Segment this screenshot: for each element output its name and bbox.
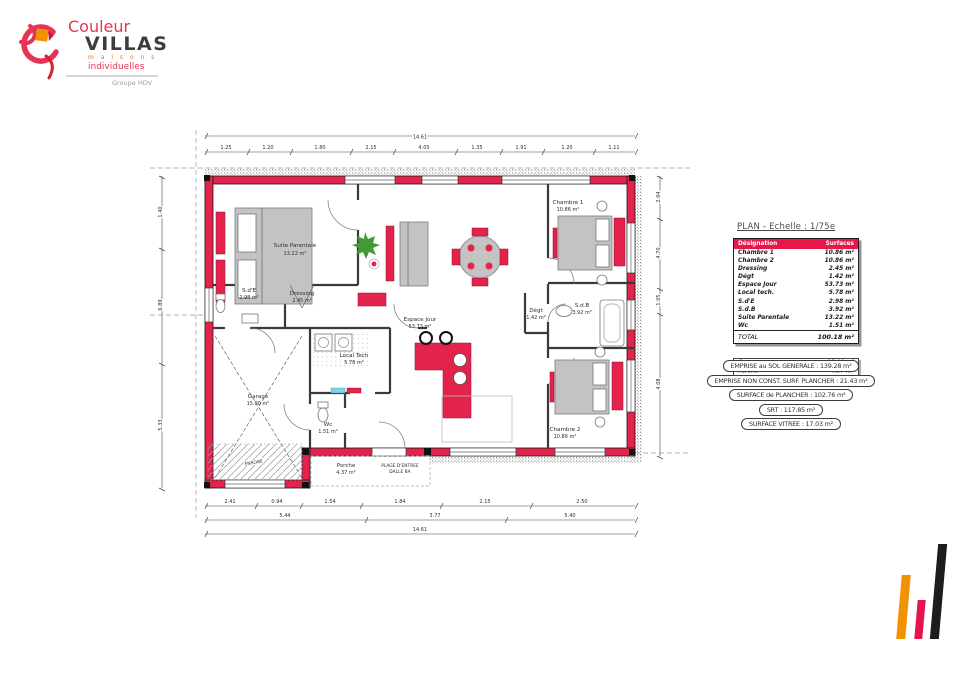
svg-text:15.00 m²: 15.00 m² — [247, 401, 270, 407]
room-area: 3.92 m² — [829, 306, 854, 314]
svg-text:2.41: 2.41 — [224, 499, 235, 505]
room-name: S.d.B — [738, 306, 755, 314]
svg-text:5.44: 5.44 — [279, 513, 290, 519]
tv-unit — [386, 226, 394, 281]
pillow — [596, 219, 609, 241]
logo-swirl-icon — [21, 26, 56, 78]
badge-srt: SRT : 117.85 m² — [759, 404, 823, 416]
svg-text:1.25: 1.25 — [220, 145, 231, 151]
svg-text:1.42 m²: 1.42 m² — [526, 315, 546, 321]
svg-text:1.20: 1.20 — [262, 145, 273, 151]
svg-text:5.78 m²: 5.78 m² — [344, 360, 364, 366]
badge-surface-vitree: SURFACE VITREE : 17.03 m² — [741, 418, 841, 430]
porch-slab — [311, 388, 430, 486]
dining-table — [459, 236, 501, 278]
svg-text:53.73 m²: 53.73 m² — [409, 324, 432, 330]
chair — [500, 249, 508, 265]
svg-text:4.70: 4.70 — [656, 247, 662, 258]
room-area: 10.86 m² — [825, 257, 854, 265]
wc-fixture — [318, 402, 328, 422]
corner-bar-orange — [896, 575, 911, 639]
wardrobe — [612, 362, 623, 410]
garage-markings: ENROBE — [208, 336, 302, 480]
living-furniture — [352, 222, 508, 306]
nightstand — [597, 275, 607, 285]
surface-badges: EMPRISE au SOL GENERALE : 139.28 m² EMPR… — [698, 360, 884, 430]
room-area: 53.73 m² — [825, 281, 854, 289]
svg-text:14.61: 14.61 — [413, 527, 427, 533]
svg-text:1.51 m²: 1.51 m² — [318, 429, 338, 435]
room-area: 10.86 m² — [825, 249, 854, 257]
badge-emprise-sol: EMPRISE au SOL GENERALE : 139.28 m² — [723, 360, 860, 372]
svg-text:Espace Jour: Espace Jour — [404, 317, 437, 323]
wardrobe — [614, 218, 625, 266]
table-row: Wc1.51 m² — [734, 322, 858, 330]
svg-text:1.54: 1.54 — [324, 499, 335, 505]
total-label: TOTAL — [738, 333, 758, 341]
washbasin — [556, 306, 572, 317]
washer — [315, 334, 332, 351]
svg-text:5.40: 5.40 — [564, 513, 575, 519]
table-row: S.d'E2.98 m² — [734, 298, 858, 306]
wardrobe — [216, 212, 225, 254]
svg-text:13.22 m²: 13.22 m² — [284, 251, 307, 257]
svg-text:Chambre 1: Chambre 1 — [553, 200, 584, 206]
badge-surface-plancher: SURFACE de PLANCHER : 102.76 m² — [729, 389, 854, 401]
sdb-fixtures — [556, 300, 624, 346]
table-row: Espace Jour53.73 m² — [734, 281, 858, 289]
room-name: Suite Parentale — [738, 314, 789, 322]
chair — [452, 249, 460, 265]
kitchen-furniture — [415, 332, 512, 442]
nightstand — [595, 347, 605, 357]
room-name: S.d'E — [738, 298, 755, 306]
sink — [454, 354, 467, 367]
company-logo: Couleur VILLAS m a i s o n s individuell… — [8, 6, 178, 96]
room-name: Chambre 2 — [738, 257, 774, 265]
brand-villas: VILLAS — [85, 33, 168, 55]
bathtub — [600, 300, 624, 346]
table-row: Chambre 110.86 m² — [734, 249, 858, 257]
page: Couleur VILLAS m a i s o n s individuell… — [0, 0, 960, 678]
svg-text:PLAGE D'ENTREE: PLAGE D'ENTREE — [381, 463, 419, 469]
dryer — [335, 334, 352, 351]
svg-text:1.80: 1.80 — [314, 145, 325, 151]
corner-bar-pink — [914, 600, 925, 639]
svg-text:4.05: 4.05 — [418, 145, 429, 151]
surface-panel: PLAN - Echelle : 1/75e Désignation Surfa… — [733, 222, 883, 379]
svg-text:1.11: 1.11 — [608, 145, 619, 151]
svg-text:3.77: 3.77 — [429, 513, 440, 519]
svg-text:Dégt: Dégt — [529, 307, 543, 314]
sofa — [400, 222, 428, 286]
svg-text:2.98 m²: 2.98 m² — [239, 295, 259, 301]
header-surfaces: Surfaces — [826, 241, 854, 247]
runner-rug — [553, 228, 557, 258]
svg-text:S.d.B: S.d.B — [575, 303, 590, 309]
svg-text:1.20: 1.20 — [561, 145, 572, 151]
table-total-row: TOTAL 100.18 m² — [734, 330, 858, 343]
table-row: Chambre 210.86 m² — [734, 257, 858, 265]
pillow — [596, 245, 609, 267]
svg-text:6.89: 6.89 — [158, 299, 164, 310]
room-name: Espace Jour — [738, 281, 777, 289]
total-value: 100.18 m² — [818, 333, 854, 341]
svg-text:5.33: 5.33 — [158, 419, 164, 430]
orange-square — [35, 28, 48, 41]
table-row: Dégt1.42 m² — [734, 273, 858, 281]
svg-text:3.92 m²: 3.92 m² — [572, 310, 592, 316]
room-area: 13.22 m² — [825, 314, 854, 322]
svg-text:2.15: 2.15 — [365, 145, 376, 151]
svg-text:1.91: 1.91 — [515, 145, 526, 151]
room-area: 1.51 m² — [829, 322, 854, 330]
room-name: Dégt — [738, 273, 754, 281]
svg-text:Garage: Garage — [248, 394, 269, 400]
chair — [472, 278, 488, 286]
room-name: Chambre 1 — [738, 249, 774, 257]
svg-text:14.61: 14.61 — [413, 135, 427, 141]
svg-text:4.37 m²: 4.37 m² — [336, 470, 356, 476]
svg-text:DALLE BA: DALLE BA — [389, 469, 410, 475]
runner-rug — [550, 372, 554, 402]
basin — [242, 314, 258, 323]
logo-group: Groupe HDV — [112, 79, 153, 87]
room-name: Wc — [738, 322, 748, 330]
svg-text:Local Tech: Local Tech — [340, 353, 369, 359]
svg-text:10.86 m²: 10.86 m² — [554, 434, 577, 440]
surface-table-header: Désignation Surfaces — [734, 239, 858, 249]
svg-text:4.08: 4.08 — [656, 378, 662, 389]
room-name: Local tech. — [738, 289, 774, 297]
table-row: Dressing2.45 m² — [734, 265, 858, 273]
table-row: Suite Parentale13.22 m² — [734, 314, 858, 322]
table-row: S.d.B3.92 m² — [734, 306, 858, 314]
svg-text:Wc: Wc — [324, 422, 333, 428]
table-row: Local tech.5.78 m² — [734, 289, 858, 297]
svg-text:1.35: 1.35 — [471, 145, 482, 151]
pillow — [593, 389, 606, 411]
svg-text:10.86 m²: 10.86 m² — [557, 207, 580, 213]
header-designation: Désignation — [738, 241, 777, 247]
svg-text:2.15: 2.15 — [479, 499, 490, 505]
doormat-red — [347, 388, 361, 393]
svg-text:Suite Parentale: Suite Parentale — [274, 243, 317, 249]
chambre2-furniture — [550, 347, 623, 427]
room-name: Dressing — [738, 265, 767, 273]
surface-table: Désignation Surfaces Chambre 110.86 m² C… — [733, 238, 859, 344]
chair — [472, 228, 488, 236]
doormat-blue — [331, 388, 345, 393]
badge-emprise-non-const: EMPRISE NON CONST. SURF. PLANCHER : 21.4… — [707, 375, 876, 387]
plant-icon — [352, 232, 380, 259]
room-area: 2.98 m² — [829, 298, 854, 306]
svg-text:Dressing: Dressing — [290, 291, 315, 297]
svg-text:1.84: 1.84 — [394, 499, 405, 505]
coffee-table — [358, 293, 386, 306]
toilet-icon — [318, 408, 328, 422]
room-area: 2.45 m² — [829, 265, 854, 273]
sink — [454, 372, 467, 385]
svg-text:Chambre 2: Chambre 2 — [550, 427, 581, 433]
svg-text:1.05: 1.05 — [656, 294, 662, 305]
toilet-icon — [216, 300, 225, 313]
tagline-individuelles: individuelles — [88, 62, 145, 72]
nightstand — [595, 417, 605, 427]
pillow — [238, 214, 256, 252]
room-area: 1.42 m² — [829, 273, 854, 281]
svg-text:Porche: Porche — [337, 463, 356, 469]
svg-text:1.40: 1.40 — [158, 206, 164, 217]
svg-text:0.94: 0.94 — [271, 499, 282, 505]
svg-text:2.45 m²: 2.45 m² — [292, 298, 312, 304]
svg-text:S.d'E: S.d'E — [242, 288, 256, 294]
plan-title: PLAN - Echelle : 1/75e — [737, 222, 883, 232]
tagline-maisons: m a i s o n s — [88, 54, 157, 61]
pillow — [593, 363, 606, 385]
floor-plan: ENROBE — [150, 108, 690, 544]
svg-text:2.50: 2.50 — [576, 499, 587, 505]
svg-text:2.04: 2.04 — [656, 191, 662, 202]
corner-bar-black — [930, 544, 947, 639]
nightstand — [597, 201, 607, 211]
chambre1-furniture — [553, 201, 625, 285]
armchair — [372, 262, 377, 267]
room-area: 5.78 m² — [829, 289, 854, 297]
